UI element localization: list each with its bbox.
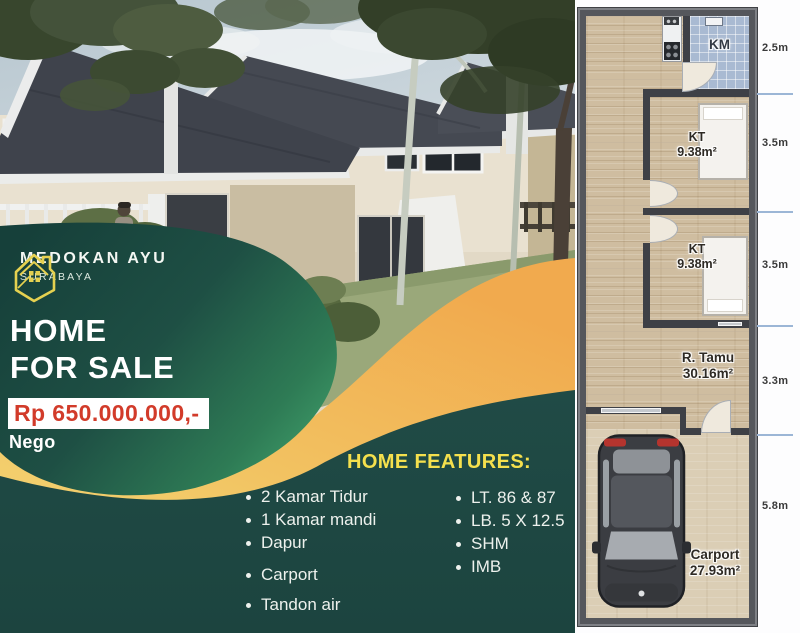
dimension-tick <box>757 211 793 213</box>
feature-item: Dapur <box>246 532 376 553</box>
window <box>718 322 742 326</box>
door-arc-bedroom2 <box>650 215 678 243</box>
photo-panel: MEDOKAN AYU SURABAYA HOME FOR SALE Rp 65… <box>0 0 575 633</box>
dimension-label: 5.8m <box>762 500 800 512</box>
pillow <box>707 299 743 312</box>
brand-logo: MEDOKAN AYU SURABAYA <box>10 250 167 283</box>
feature-item: IMB <box>456 556 565 577</box>
kitchen-sink-icon <box>664 17 679 25</box>
negotiable-label: Nego <box>9 432 56 453</box>
price-badge: Rp 650.000.000,- <box>8 398 209 429</box>
feature-item: LB. 5 X 12.5 <box>456 510 565 531</box>
floor-plan: KM KT 9.38m² KT 9.38m² <box>578 8 757 626</box>
house-logo-icon <box>10 250 58 304</box>
feature-item: 1 Kamar mandi <box>246 509 376 530</box>
floor-plan-interior: KM KT 9.38m² KT 9.38m² <box>586 16 749 618</box>
dimension-label: 2.5m <box>762 42 800 54</box>
feature-item: 2 Kamar Tidur <box>246 486 376 507</box>
room-label-bedroom1: KT 9.38m² <box>647 130 747 160</box>
dimension-label: 3.5m <box>762 137 800 149</box>
stove-icon <box>664 42 680 60</box>
wall <box>643 89 749 97</box>
door-arc-bedroom1 <box>650 180 678 207</box>
door-arc-entrance <box>701 400 731 433</box>
wall <box>643 208 749 215</box>
room-label-living: R. Tamu 30.16m² <box>658 350 758 382</box>
features-list-primary: 2 Kamar Tidur 1 Kamar mandi Dapur Carpor… <box>246 486 376 617</box>
feature-item: LT. 86 & 87 <box>456 487 565 508</box>
dimension-label: 3.3m <box>762 375 800 387</box>
title-line-2: FOR SALE <box>10 349 175 386</box>
poster-title: HOME FOR SALE <box>10 312 175 386</box>
room-label-bathroom: KM <box>690 37 749 52</box>
features-heading: HOME FEATURES: <box>347 451 531 474</box>
washbasin <box>705 17 723 26</box>
wall <box>683 16 690 62</box>
title-line-1: HOME <box>10 312 175 349</box>
dimension-tick <box>757 325 793 327</box>
wall <box>731 428 749 435</box>
pillow <box>703 107 743 120</box>
feature-item: Tandon air <box>246 594 376 615</box>
dimension-tick <box>757 434 793 436</box>
floor-plan-panel: KM KT 9.38m² KT 9.38m² <box>575 0 800 633</box>
real-estate-flyer: MEDOKAN AYU SURABAYA HOME FOR SALE Rp 65… <box>0 0 800 633</box>
dimension-tick <box>757 93 793 95</box>
room-label-bedroom2: KT 9.38m² <box>647 242 747 272</box>
window <box>601 408 661 413</box>
feature-item: SHM <box>456 533 565 554</box>
dimension-label: 3.5m <box>762 259 800 271</box>
car-top-view <box>591 430 692 614</box>
feature-item: Carport <box>246 564 376 585</box>
features-list-secondary: LT. 86 & 87 LB. 5 X 12.5 SHM IMB <box>456 487 565 579</box>
